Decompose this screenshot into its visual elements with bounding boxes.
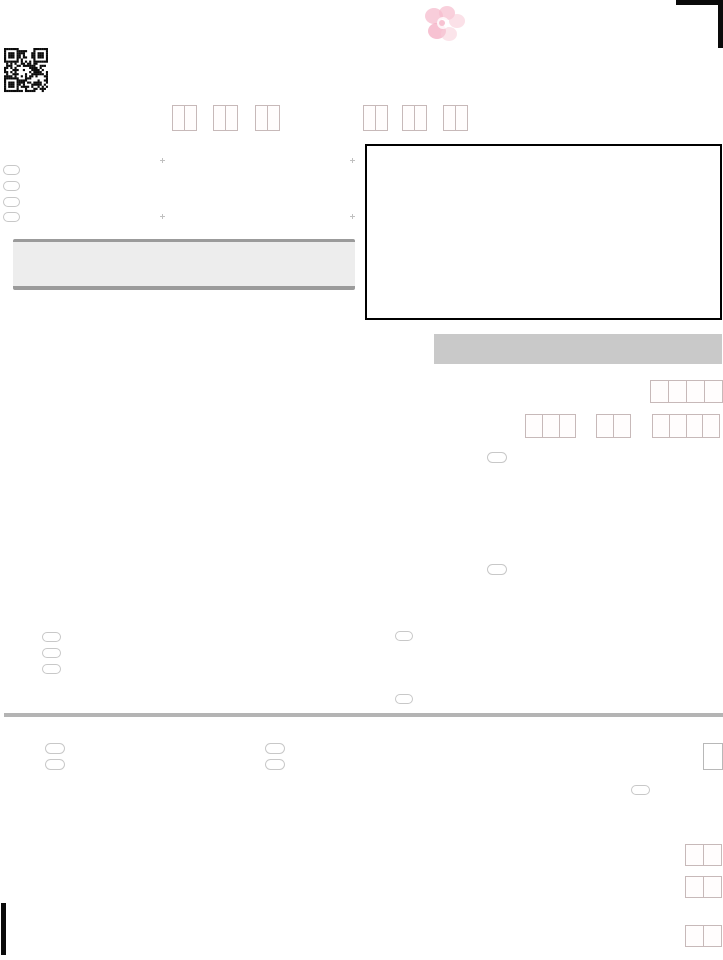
option-oval-upper-left-1[interactable] [3,165,20,175]
digit-box-right-row2-b[interactable] [596,414,631,438]
corner-registration-mark [676,0,723,5]
option-oval-middle-right-2[interactable] [487,564,507,575]
option-oval-middle-left-2[interactable] [42,648,61,658]
digit-cell[interactable] [703,844,722,866]
section-divider [4,713,723,717]
digit-cell[interactable] [702,414,720,438]
digit-cell[interactable] [613,414,631,438]
digit-box-right-row1[interactable] [650,380,723,403]
option-oval-middle-center-2[interactable] [395,694,413,704]
option-oval-lower-left-1[interactable] [45,743,65,754]
option-oval-lower-right-1[interactable] [631,785,650,795]
digit-cell[interactable] [414,105,427,131]
digit-cell[interactable] [225,105,238,131]
digit-box-right-row2-c[interactable] [652,414,720,438]
digit-cell[interactable] [703,876,722,898]
area-corner-tick [350,158,355,163]
digit-cell[interactable] [267,105,280,131]
option-oval-middle-right-1[interactable] [487,452,507,463]
area-corner-tick [350,214,355,219]
digit-box-bottom-right-1[interactable] [685,844,722,866]
option-oval-upper-left-4[interactable] [3,212,20,222]
digit-cell[interactable] [596,414,614,438]
digit-box-top-right-2[interactable] [402,105,427,131]
digit-cell[interactable] [669,414,687,438]
digit-box-top-left-3[interactable] [255,105,280,131]
option-oval-lower-left-2[interactable] [45,759,65,770]
option-oval-lower-center-1[interactable] [265,743,285,754]
area-corner-tick [160,214,165,219]
cherry-blossom-watermark-icon [416,4,470,48]
digit-cell[interactable] [703,925,722,947]
small-entry-box[interactable] [703,743,723,770]
digit-box-top-right-1[interactable] [363,105,388,131]
digit-cell[interactable] [542,414,560,438]
option-oval-middle-center-1[interactable] [395,631,413,641]
digit-box-top-left-2[interactable] [213,105,238,131]
digit-box-top-left-1[interactable] [172,105,197,131]
option-oval-upper-left-3[interactable] [3,197,20,207]
digit-cell[interactable] [685,876,704,898]
digit-cell[interactable] [668,380,687,403]
heading-band-left [13,239,355,290]
option-oval-upper-left-2[interactable] [3,181,20,191]
digit-cell[interactable] [685,925,704,947]
heading-band-right [434,334,722,364]
digit-cell[interactable] [686,380,705,403]
digit-cell[interactable] [184,105,197,131]
digit-cell[interactable] [686,414,704,438]
corner-registration-mark [718,0,723,48]
digit-cell[interactable] [704,380,723,403]
digit-cell[interactable] [685,844,704,866]
digit-cell[interactable] [650,380,669,403]
digit-cell[interactable] [525,414,543,438]
scanned-form-page [0,0,723,960]
area-corner-tick [160,158,165,163]
qr-code-icon [4,47,48,93]
digit-cell[interactable] [455,105,468,131]
digit-cell[interactable] [652,414,670,438]
digit-box-bottom-right-2[interactable] [685,876,722,898]
digit-box-right-row2-a[interactable] [525,414,576,438]
digit-box-top-right-3[interactable] [443,105,468,131]
digit-cell[interactable] [559,414,577,438]
option-oval-middle-left-3[interactable] [42,664,61,674]
address-window-frame [365,144,722,320]
option-oval-middle-left-1[interactable] [42,632,61,642]
digit-box-bottom-right-3[interactable] [685,925,722,947]
digit-cell[interactable] [375,105,388,131]
option-oval-lower-center-2[interactable] [265,759,285,770]
timing-mark [1,903,6,955]
